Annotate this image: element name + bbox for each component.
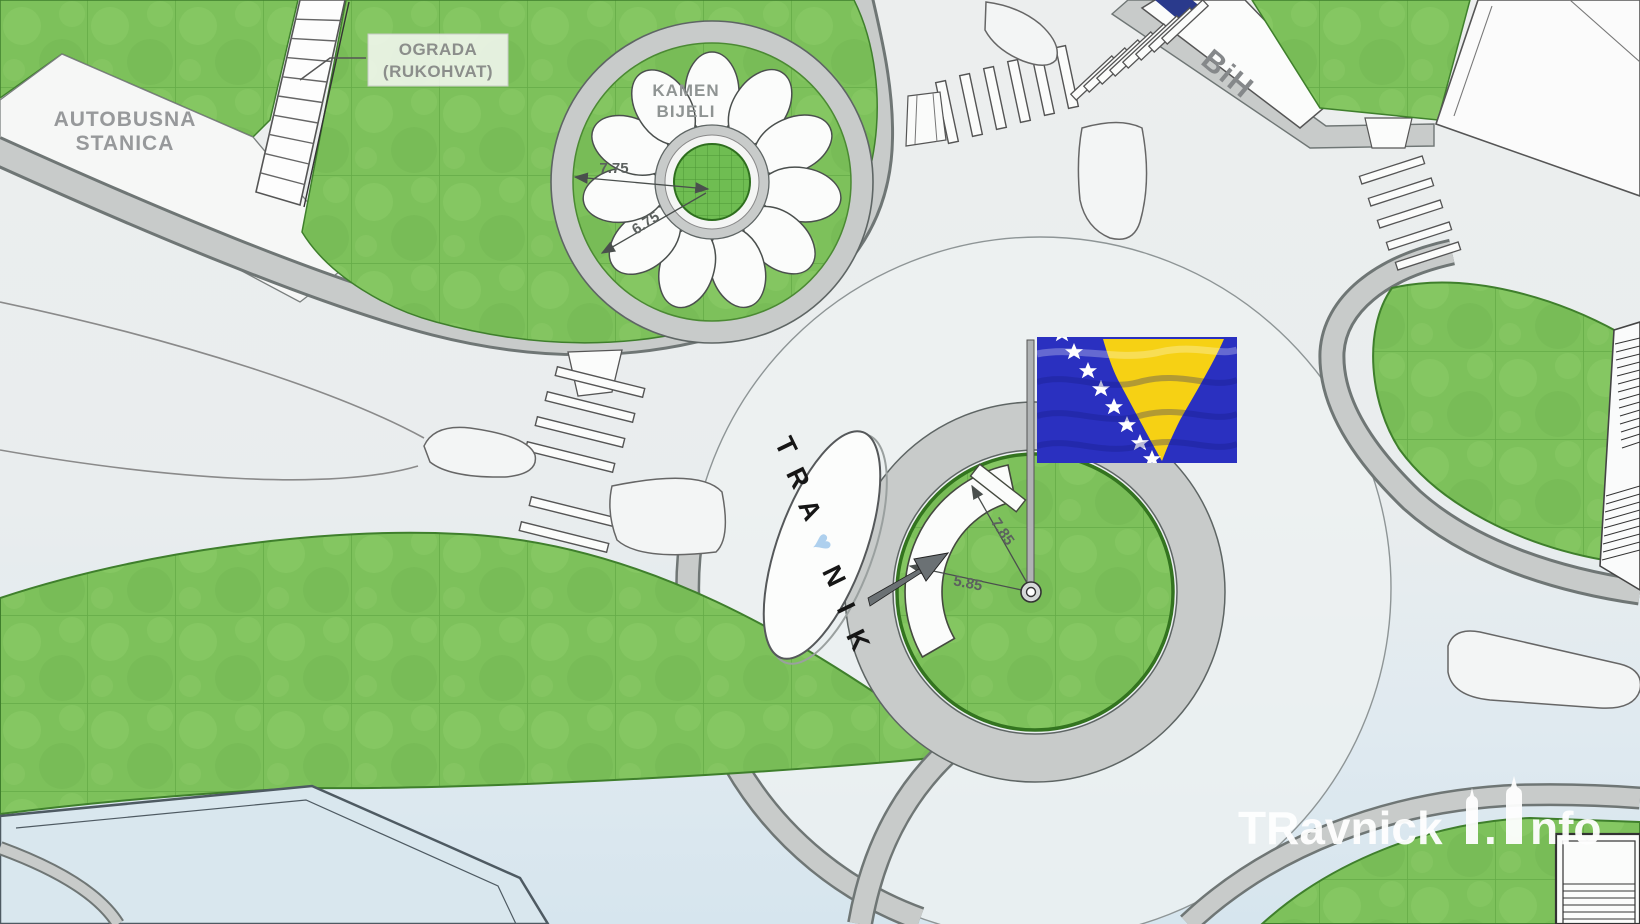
svg-text:STANICA: STANICA <box>76 132 175 155</box>
traffic-island <box>610 478 725 554</box>
watermark-separator: . <box>1484 802 1497 854</box>
svg-text:KAMEN: KAMEN <box>652 81 719 100</box>
site-plan-drawing: 7.75 6.75 KAMEN BIJELI <box>0 0 1640 924</box>
svg-text:OGRADA: OGRADA <box>399 40 478 59</box>
flower-center-bed <box>674 144 750 220</box>
bih-flag <box>1037 325 1237 466</box>
site-plan-canvas: 7.75 6.75 KAMEN BIJELI <box>0 0 1640 924</box>
svg-text:AUTOBUSNA: AUTOBUSNA <box>54 108 197 131</box>
flower-circle <box>551 21 873 343</box>
curb-ramp <box>1365 118 1412 148</box>
dimension-flower-outer: 7.75 <box>599 160 628 177</box>
watermark-text-left: TRavnick <box>1238 802 1443 854</box>
svg-text:(RUKOHVAT): (RUKOHVAT) <box>383 62 493 81</box>
curb-ramp <box>906 92 946 146</box>
watermark-text-right: nfo <box>1530 802 1602 854</box>
svg-text:BIJELI: BIJELI <box>657 102 716 121</box>
